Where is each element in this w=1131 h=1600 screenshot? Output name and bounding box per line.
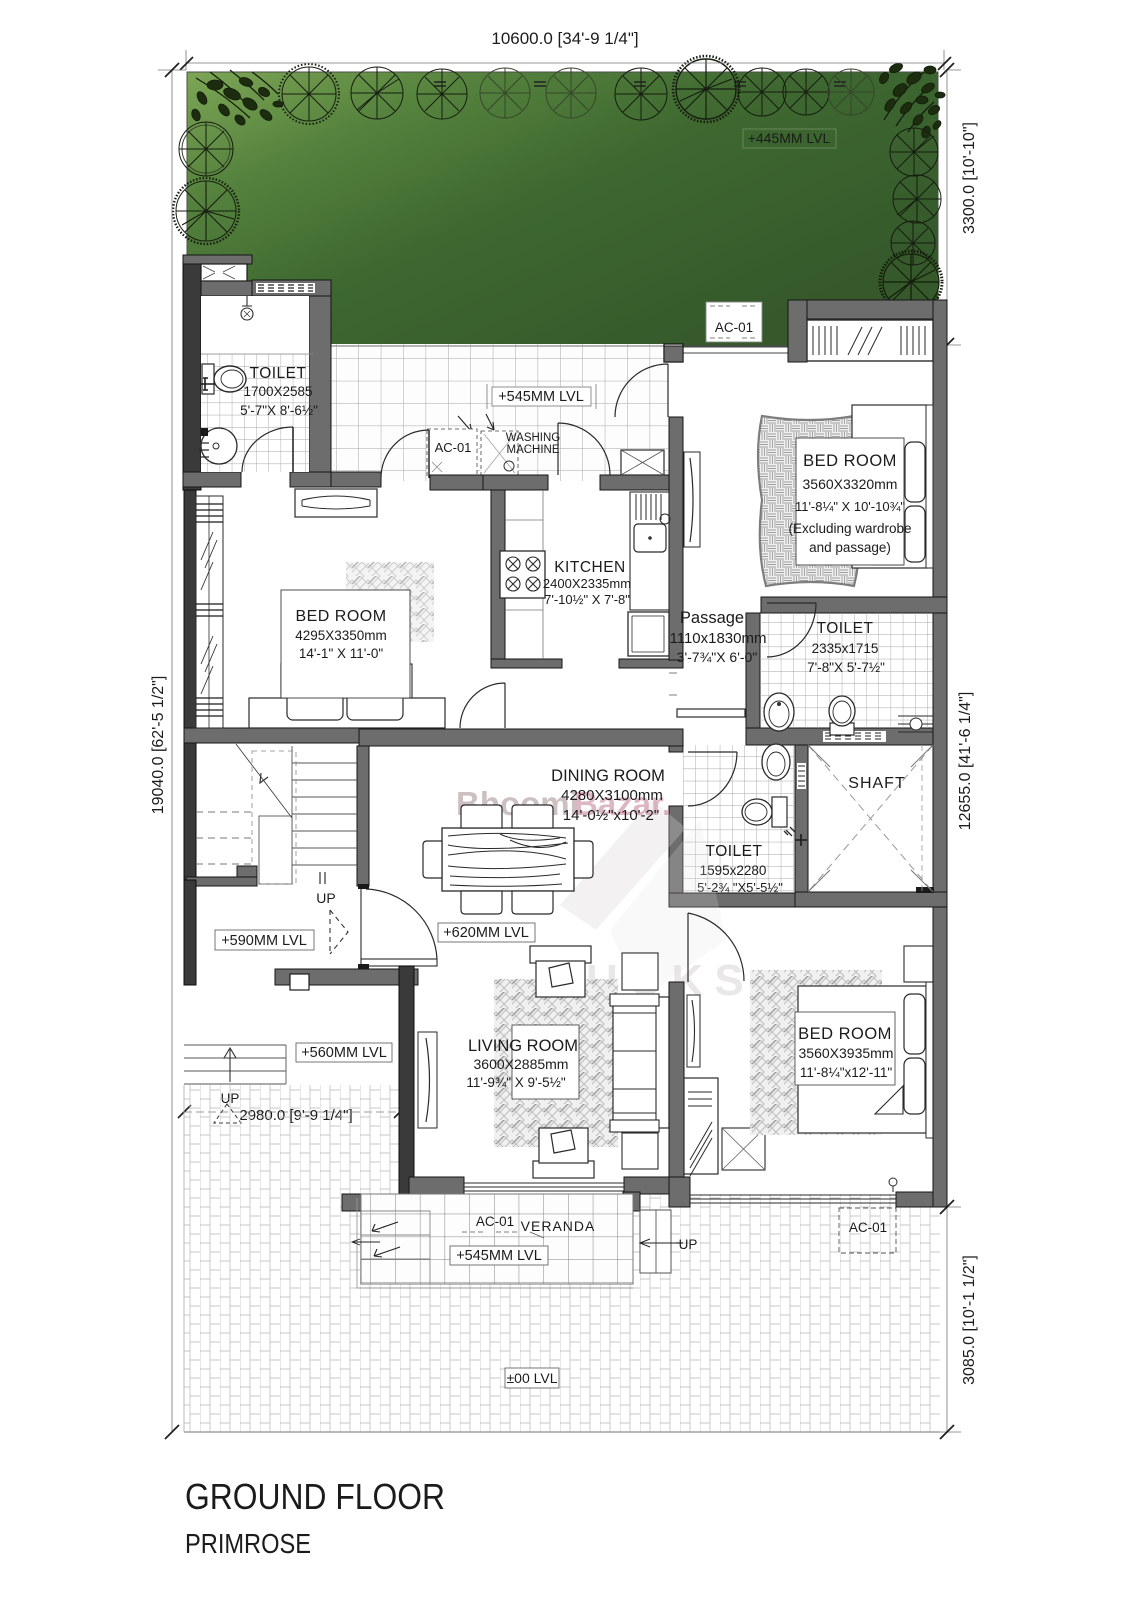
svg-text:and passage): and passage) — [809, 540, 891, 555]
svg-text:4295X3350mm: 4295X3350mm — [295, 628, 387, 643]
svg-text:BED ROOM: BED ROOM — [798, 1025, 892, 1043]
svg-text:+590MM LVL: +590MM LVL — [221, 933, 307, 949]
svg-text:3560X3935mm: 3560X3935mm — [799, 1045, 894, 1061]
svg-text:SHAFT: SHAFT — [848, 775, 905, 792]
svg-text:10600.0 [34'-9 1/4"]: 10600.0 [34'-9 1/4"] — [491, 29, 638, 48]
svg-text:11'-8¼"x12'-11": 11'-8¼"x12'-11" — [800, 1065, 892, 1080]
svg-text:TOILET: TOILET — [250, 365, 307, 382]
svg-text:3600X2885mm: 3600X2885mm — [474, 1056, 569, 1072]
svg-text:Passage: Passage — [680, 609, 744, 627]
svg-text:1700X2585: 1700X2585 — [243, 384, 312, 399]
svg-text:GROUND FLOOR: GROUND FLOOR — [185, 1476, 445, 1517]
svg-text:12655.0 [41'-6 1/4"]: 12655.0 [41'-6 1/4"] — [957, 692, 974, 831]
svg-text:LIVING ROOM: LIVING ROOM — [468, 1037, 578, 1055]
svg-text:11'-8¼" X 10'-10¾": 11'-8¼" X 10'-10¾" — [795, 499, 905, 514]
svg-text:BED ROOM: BED ROOM — [295, 608, 386, 625]
svg-text:3560X3320mm: 3560X3320mm — [803, 476, 898, 492]
svg-text:3300.0 [10'-10"]: 3300.0 [10'-10"] — [961, 122, 978, 234]
svg-text:TOILET: TOILET — [706, 843, 763, 860]
svg-text:UP: UP — [679, 1237, 698, 1252]
svg-text:AC-01: AC-01 — [715, 320, 753, 335]
svg-text:14'-1" X 11'-0": 14'-1" X 11'-0" — [299, 646, 383, 661]
svg-text:±00 LVL: ±00 LVL — [506, 1370, 557, 1386]
svg-text:+445MM LVL: +445MM LVL — [748, 130, 831, 146]
svg-text:AC-01: AC-01 — [849, 1220, 887, 1235]
svg-text:5'-7"X 8'-6½": 5'-7"X 8'-6½" — [240, 403, 318, 418]
svg-text:MACHINE: MACHINE — [506, 444, 559, 456]
svg-text:AC-01: AC-01 — [435, 440, 472, 455]
svg-text:2335x1715: 2335x1715 — [812, 641, 879, 656]
svg-text:19040.0 [62'-5 1/2"]: 19040.0 [62'-5 1/2"] — [150, 676, 167, 815]
svg-text:PRIMROSE: PRIMROSE — [185, 1528, 311, 1559]
svg-text:14'-0½"x10'-2": 14'-0½"x10'-2" — [563, 807, 659, 824]
svg-text:KITCHEN: KITCHEN — [554, 559, 626, 576]
svg-text:+620MM LVL: +620MM LVL — [443, 925, 529, 941]
svg-text:3085.0 [10'-1 1/2"]: 3085.0 [10'-1 1/2"] — [961, 1255, 978, 1385]
svg-text:WASHING: WASHING — [506, 432, 561, 444]
svg-text:UP: UP — [316, 890, 335, 906]
svg-text:AC-01: AC-01 — [476, 1214, 514, 1229]
svg-text:11'-9¾" X 9'-5½": 11'-9¾" X 9'-5½" — [466, 1075, 566, 1090]
svg-text:(Excluding wardrobe: (Excluding wardrobe — [788, 521, 911, 536]
svg-text:TOILET: TOILET — [817, 620, 874, 637]
svg-text:1110x1830mm: 1110x1830mm — [669, 630, 766, 647]
svg-text:DINING ROOM: DINING ROOM — [551, 767, 665, 785]
svg-text:+545MM LVL: +545MM LVL — [498, 389, 584, 405]
svg-text:7'-8"X 5'-7½": 7'-8"X 5'-7½" — [807, 660, 885, 675]
svg-text:4280X3100mm: 4280X3100mm — [561, 787, 663, 804]
svg-text:BED ROOM: BED ROOM — [803, 452, 897, 470]
svg-text:VERANDA: VERANDA — [521, 1218, 596, 1234]
svg-text:+545MM LVL: +545MM LVL — [456, 1248, 542, 1264]
svg-text:3'-7¾"X 6'-0": 3'-7¾"X 6'-0" — [677, 649, 758, 665]
svg-text:7'-10½" X 7'-8": 7'-10½" X 7'-8" — [544, 592, 630, 607]
svg-text:2400X2335mm: 2400X2335mm — [543, 576, 631, 591]
svg-text:+560MM LVL: +560MM LVL — [301, 1045, 387, 1061]
